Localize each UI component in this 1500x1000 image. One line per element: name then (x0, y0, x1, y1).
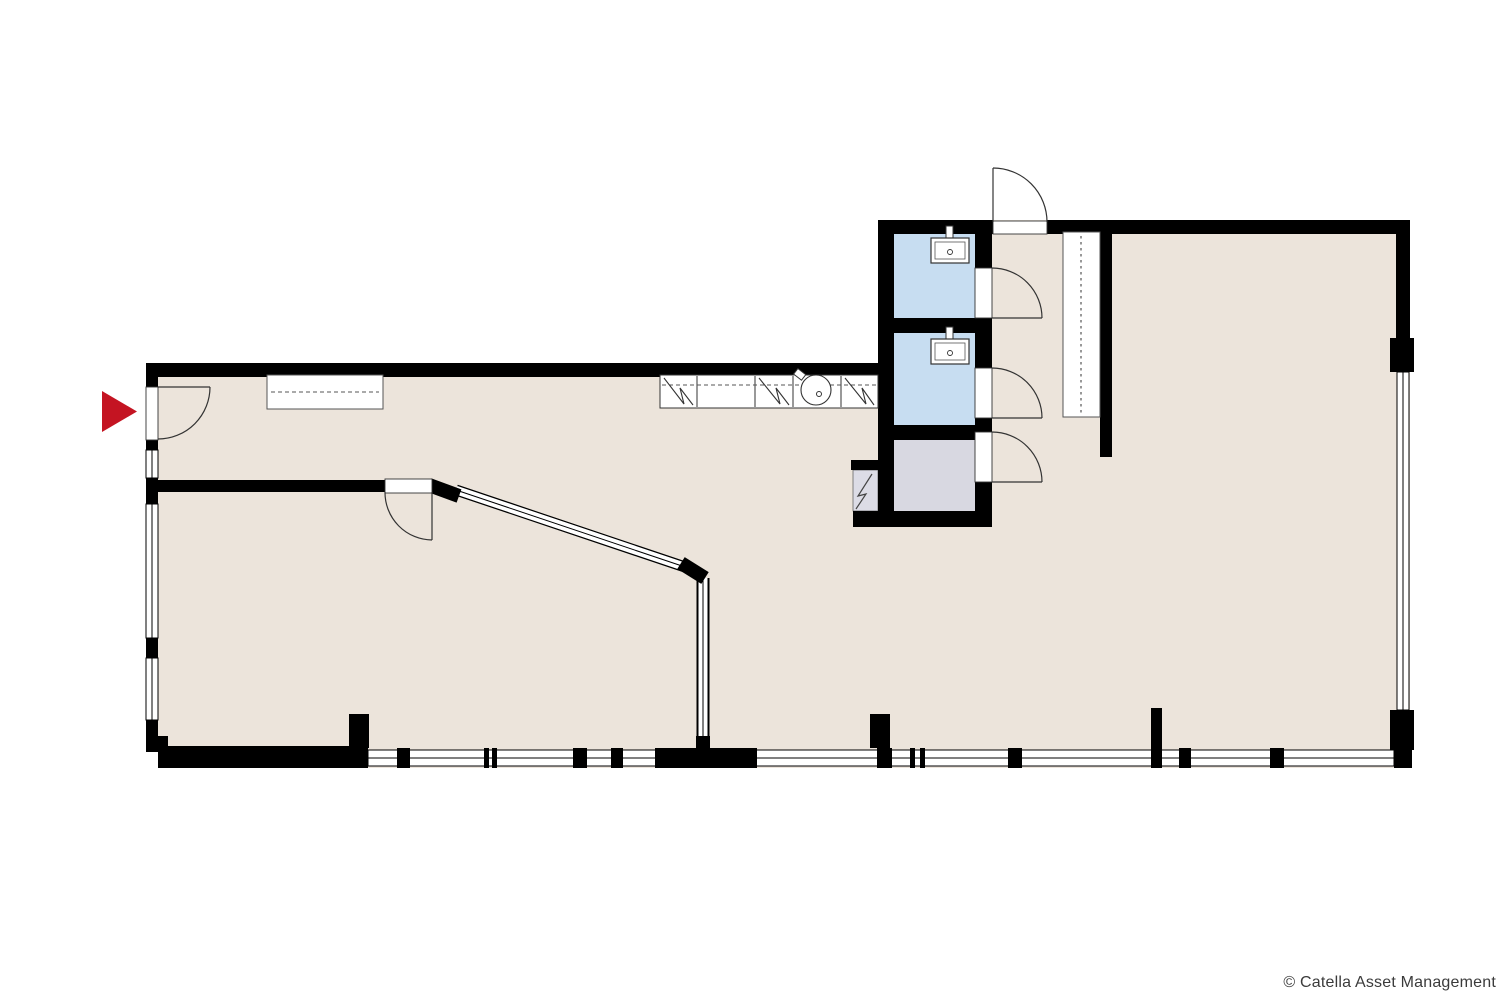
wardrobe-entrance (267, 375, 383, 409)
column (1390, 338, 1414, 372)
floorplan-drawing (0, 0, 1500, 1000)
wardrobe-corridor (1063, 232, 1100, 417)
column (349, 714, 369, 748)
floorplan-page: © Catella Asset Management (0, 0, 1500, 1000)
column (870, 714, 890, 748)
wall-cap (696, 736, 710, 752)
floor-area (146, 220, 1410, 768)
top-exit-door (993, 168, 1047, 234)
storage-room (894, 440, 975, 511)
entrance-arrow-icon (102, 391, 137, 432)
copyright-text: © Catella Asset Management (1283, 974, 1496, 992)
electrical-shaft (853, 470, 878, 511)
wall-stub (1151, 708, 1162, 768)
column (1390, 710, 1414, 750)
